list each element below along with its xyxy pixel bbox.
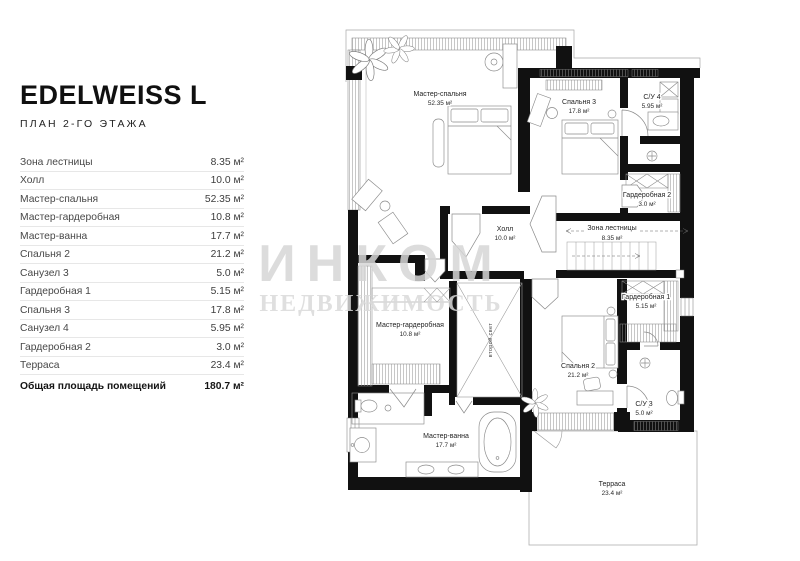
row-label: Спальня 2 [20, 249, 70, 260]
furniture [348, 28, 684, 477]
svg-text:17.7 м²: 17.7 м² [436, 442, 457, 449]
svg-text:5.95 м²: 5.95 м² [642, 103, 663, 110]
svg-text:52.35 м²: 52.35 м² [428, 100, 452, 107]
table-row: Гардеробная 23.0 м² [20, 338, 244, 357]
total-value: 180.7 м² [204, 381, 244, 392]
row-value: 5.0 м² [216, 268, 244, 279]
svg-text:3.0 м²: 3.0 м² [638, 201, 655, 208]
svg-text:8.35 м²: 8.35 м² [602, 235, 623, 242]
svg-text:10.0 м²: 10.0 м² [495, 235, 516, 242]
svg-text:21.2 м²: 21.2 м² [568, 372, 589, 379]
door-bathroom4 [622, 110, 648, 136]
lounge-chairs [352, 179, 408, 244]
table-row: Зона лестницы8.35 м² [20, 153, 244, 172]
room-label-bedroom2: Спальня 2 [561, 363, 595, 370]
row-label: Гардеробная 2 [20, 342, 91, 353]
row-value: 3.0 м² [216, 342, 244, 353]
table-row: Санузел 35.0 м² [20, 264, 244, 283]
stairs [566, 229, 688, 271]
page-subtitle: ПЛАН 2-ГО ЭТАЖА [20, 118, 244, 130]
console [503, 44, 517, 88]
table-row: Санузел 45.95 м² [20, 320, 244, 339]
area-table: Зона лестницы8.35 м² Холл10.0 м² Мастер-… [20, 153, 244, 395]
row-value: 10.0 м² [211, 175, 244, 186]
terrace-outline [529, 431, 697, 545]
table-row: Мастер-спальня52.35 м² [20, 190, 244, 209]
room-label-bathroom3: С/У 3 [635, 401, 652, 408]
door-fold-bath [390, 389, 416, 407]
table-row: Спальня 317.8 м² [20, 301, 244, 320]
door-bedroom2 [532, 279, 558, 309]
row-value: 5.95 м² [211, 323, 244, 334]
mirror-bedroom3 [608, 110, 616, 118]
room-label-master-wardrobe: Мастер-гардеробная [376, 321, 444, 329]
row-label: Мастер-ванна [20, 231, 87, 242]
table-row: Мастер-ванна17.7 м² [20, 227, 244, 246]
door-master-bedroom [452, 214, 480, 257]
bed-bedroom3 [562, 120, 618, 174]
row-value: 52.35 м² [205, 194, 244, 205]
row-label: Санузел 3 [20, 268, 69, 279]
room-label-stairs: Зона лестницы [587, 225, 636, 232]
row-label: Холл [20, 175, 44, 186]
desk-bedroom2 [577, 391, 613, 405]
svg-text:10.8 м²: 10.8 м² [400, 331, 421, 338]
room-label-void: второй свет [487, 323, 494, 358]
chair-bedroom3 [547, 108, 558, 119]
room-label-bedroom3: Спальня 3 [562, 99, 596, 106]
floor-plan: Мастер-спальня 52.35 м² Спальня 3 17.8 м… [330, 12, 710, 552]
row-value: 17.7 м² [211, 231, 244, 242]
table-row: Мастер-гардеробная10.8 м² [20, 209, 244, 228]
row-label: Санузел 4 [20, 323, 69, 334]
row-label: Гардеробная 1 [20, 286, 91, 297]
table-row: Спальня 221.2 м² [20, 246, 244, 265]
row-value: 8.35 м² [211, 157, 244, 168]
svg-text:17.8 м²: 17.8 м² [569, 108, 590, 115]
door-bedroom3 [530, 196, 556, 252]
svg-text:5.0 м²: 5.0 м² [635, 410, 652, 417]
bed-bedroom2 [562, 316, 618, 368]
room-label-master-bath: Мастер-ванна [423, 433, 469, 440]
floor-plan-svg: Мастер-спальня 52.35 м² Спальня 3 17.8 м… [330, 12, 710, 552]
page-title: EDELWEISS L [20, 80, 244, 111]
svg-text:23.4 м²: 23.4 м² [602, 490, 623, 497]
svg-text:5.15 м²: 5.15 м² [636, 303, 657, 310]
row-value: 23.4 м² [211, 360, 244, 371]
info-panel: EDELWEISS L ПЛАН 2-ГО ЭТАЖА Зона лестниц… [20, 80, 244, 395]
row-label: Мастер-гардеробная [20, 212, 120, 223]
table-row: Холл10.0 м² [20, 172, 244, 191]
door-fold-void [456, 401, 472, 413]
room-label-wardrobe1: Гардеробная 1 [622, 293, 670, 301]
row-value: 21.2 м² [211, 249, 244, 260]
row-label: Мастер-спальня [20, 194, 98, 205]
vanity [406, 462, 478, 477]
room-label-terrace: Терраса [599, 481, 626, 488]
room-label-master-bedroom: Мастер-спальня [413, 91, 466, 98]
row-value: 5.15 м² [211, 286, 244, 297]
table-row: Терраса23.4 м² [20, 357, 244, 376]
total-label: Общая площадь помещений [20, 381, 166, 392]
table-total-row: Общая площадь помещений180.7 м² [20, 375, 244, 395]
room-label-bathroom4: С/У 4 [643, 94, 660, 101]
row-label: Терраса [20, 360, 60, 371]
bed-master [448, 106, 511, 174]
room-label-wardrobe2: Гардеробная 2 [623, 191, 671, 199]
row-value: 10.8 м² [211, 212, 244, 223]
table-row: Гардеробная 15.15 м² [20, 283, 244, 302]
row-value: 17.8 м² [211, 305, 244, 316]
bench [433, 119, 444, 167]
room-label-hall: Холл [497, 226, 514, 233]
row-label: Зона лестницы [20, 157, 93, 168]
row-label: Спальня 3 [20, 305, 70, 316]
